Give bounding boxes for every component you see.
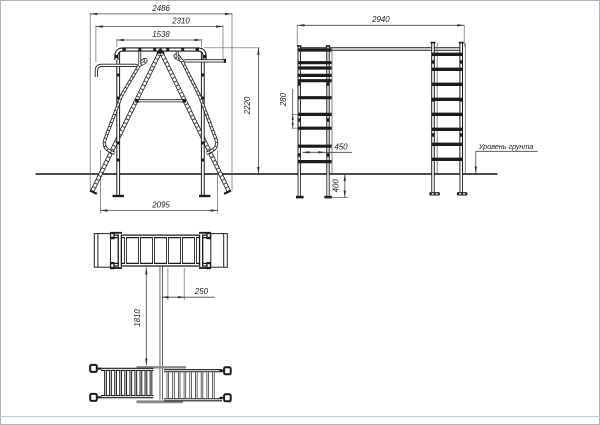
svg-text:2940: 2940 <box>371 15 390 24</box>
svg-text:2486: 2486 <box>151 4 170 13</box>
svg-text:1538: 1538 <box>152 30 170 39</box>
svg-text:Уровень грунта: Уровень грунта <box>478 142 534 151</box>
svg-text:250: 250 <box>194 287 209 296</box>
svg-text:400: 400 <box>331 179 340 193</box>
svg-text:2310: 2310 <box>171 16 190 25</box>
svg-text:280: 280 <box>279 92 288 107</box>
svg-text:2095: 2095 <box>151 200 170 209</box>
svg-text:450: 450 <box>334 143 348 152</box>
svg-text:2220: 2220 <box>243 96 252 115</box>
svg-text:1810: 1810 <box>133 309 142 327</box>
